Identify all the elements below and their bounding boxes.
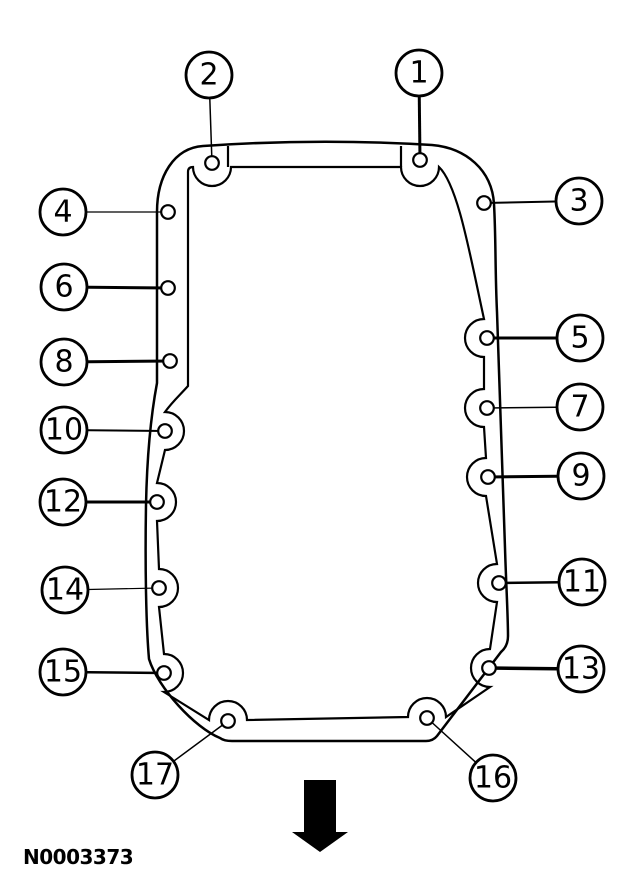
callout-16: 16: [470, 755, 516, 801]
bolt-hole-1: [413, 153, 427, 167]
callout-number-12: 12: [44, 485, 82, 520]
callout-number-2: 2: [199, 58, 218, 93]
callout-15: 15: [40, 649, 86, 695]
callout-number-8: 8: [54, 345, 73, 380]
callout-9: 9: [558, 453, 604, 499]
callout-5: 5: [557, 315, 603, 361]
callout-1: 1: [396, 50, 442, 96]
callout-7: 7: [557, 384, 603, 430]
bolt-hole-6: [161, 281, 175, 295]
callout-number-17: 17: [136, 758, 174, 793]
bolt-hole-12: [150, 495, 164, 509]
callout-number-7: 7: [570, 390, 589, 425]
bolt-hole-16: [420, 711, 434, 725]
callout-number-4: 4: [53, 195, 72, 230]
callout-number-6: 6: [54, 270, 73, 305]
callout-number-5: 5: [570, 321, 589, 356]
callout-4: 4: [40, 189, 86, 235]
callout-8: 8: [41, 339, 87, 385]
callout-12: 12: [40, 479, 86, 525]
bolt-hole-13: [482, 661, 496, 675]
callout-3: 3: [556, 178, 602, 224]
callout-bubbles: 1234567891011121314151617: [40, 50, 605, 801]
bolt-hole-5: [480, 331, 494, 345]
down-arrow-icon: [292, 780, 348, 852]
bolt-hole-7: [480, 401, 494, 415]
callout-number-13: 13: [562, 652, 600, 687]
bolt-hole-9: [481, 470, 495, 484]
gasket-inner-outline: [157, 167, 497, 720]
callout-14: 14: [42, 567, 88, 613]
callout-2: 2: [186, 52, 232, 98]
figure-number-label: N0003373: [23, 845, 133, 869]
callout-6: 6: [41, 264, 87, 310]
bolt-hole-11: [492, 576, 506, 590]
callout-11: 11: [559, 559, 605, 605]
bolt-hole-4: [161, 205, 175, 219]
callout-17: 17: [132, 752, 178, 798]
bolt-hole-17: [221, 714, 235, 728]
callout-number-1: 1: [409, 56, 428, 91]
callout-number-15: 15: [44, 655, 82, 690]
callout-number-10: 10: [45, 413, 83, 448]
bolt-hole-2: [205, 156, 219, 170]
bolt-hole-15: [157, 666, 171, 680]
callout-13: 13: [558, 646, 604, 692]
callout-10: 10: [41, 407, 87, 453]
callout-number-3: 3: [569, 184, 588, 219]
bolt-hole-10: [158, 424, 172, 438]
bolt-hole-3: [477, 196, 491, 210]
leader-lines: [63, 73, 582, 778]
callout-number-14: 14: [46, 573, 84, 608]
bolt-holes: [150, 153, 506, 728]
callout-number-9: 9: [571, 459, 590, 494]
diagram-page: 1234567891011121314151617 N0003373: [0, 0, 640, 878]
gasket-sequence-diagram: 1234567891011121314151617 N0003373: [0, 0, 640, 878]
callout-number-11: 11: [563, 565, 601, 600]
bolt-hole-14: [152, 581, 166, 595]
bolt-hole-8: [163, 354, 177, 368]
gasket-outer-outline: [146, 142, 508, 741]
callout-number-16: 16: [474, 761, 512, 796]
